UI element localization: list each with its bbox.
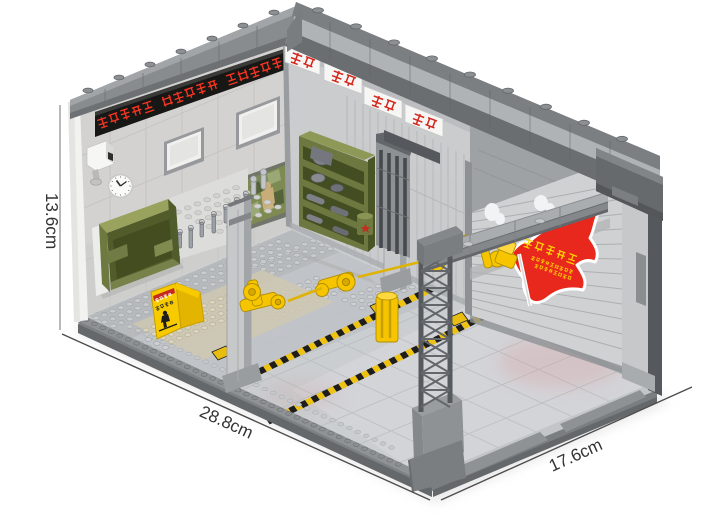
svg-text:13.6cm: 13.6cm [42, 193, 62, 249]
